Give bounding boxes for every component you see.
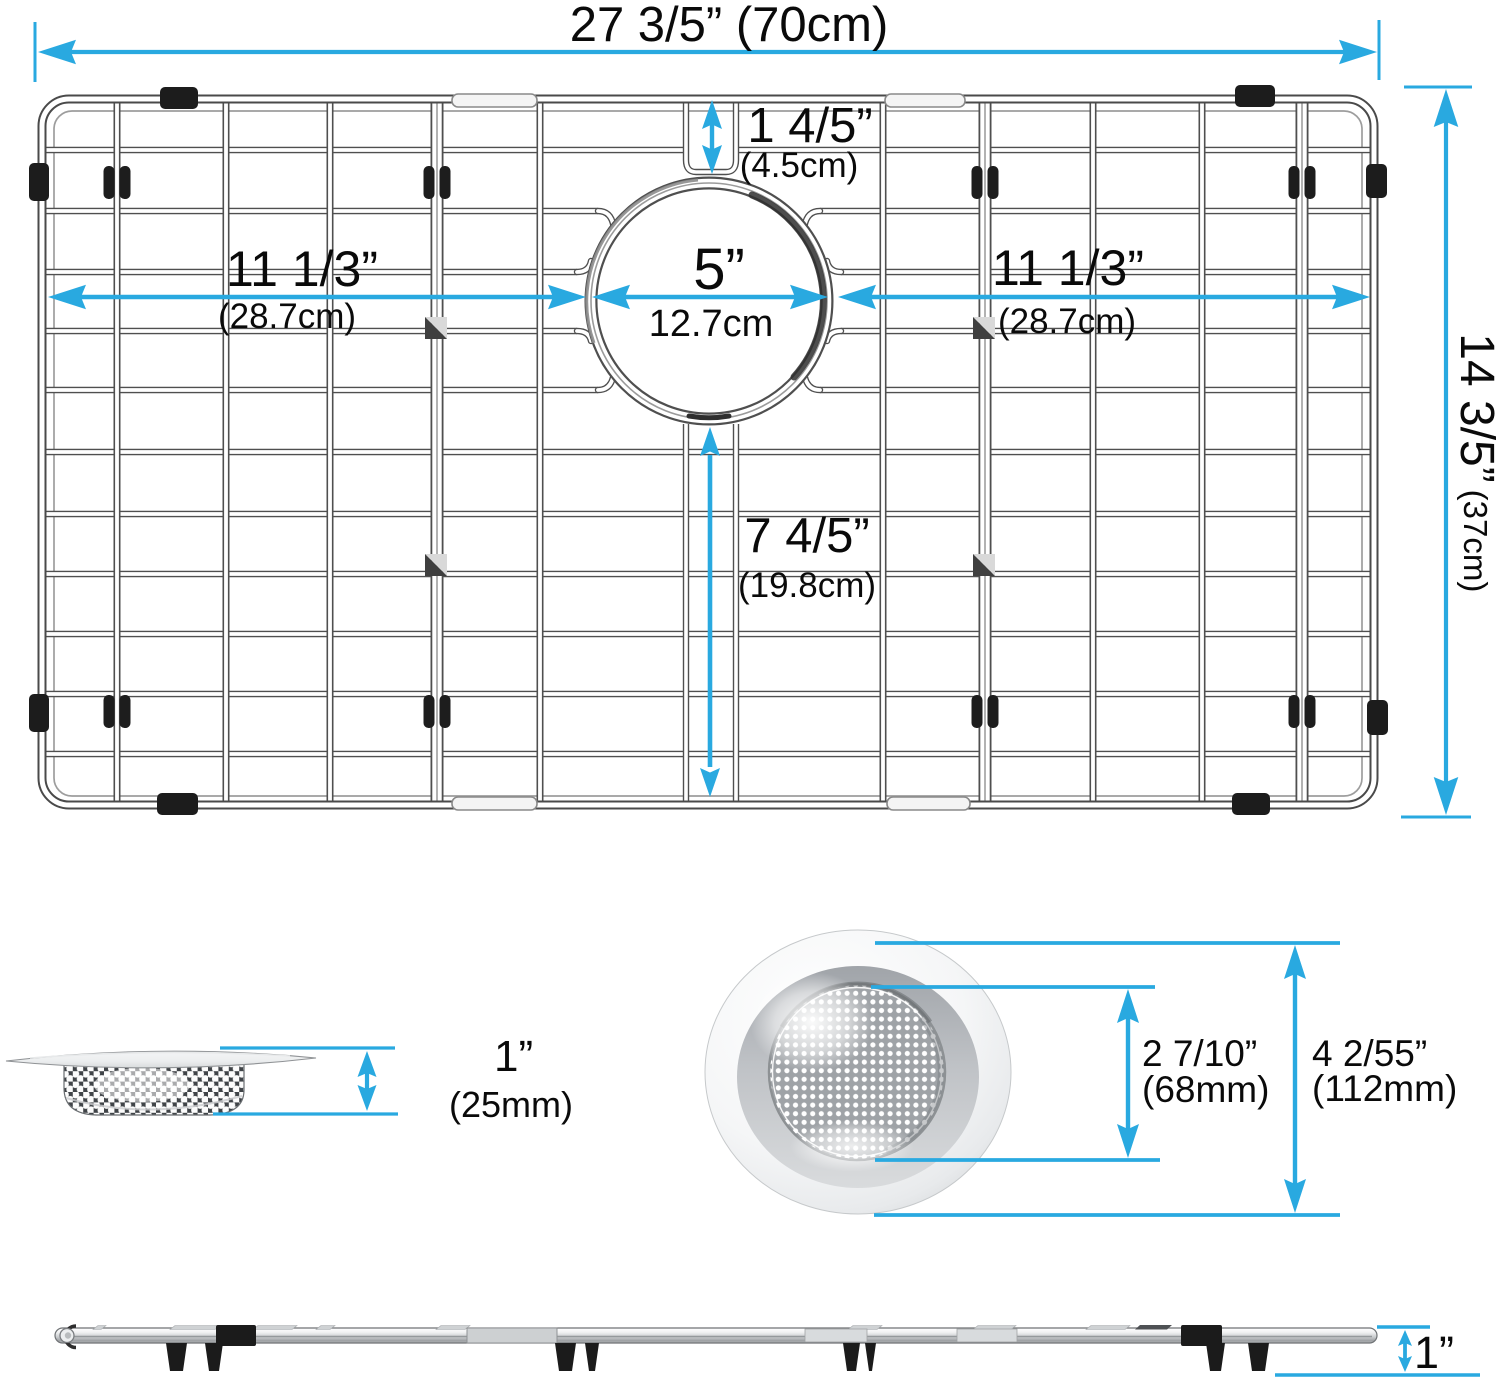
svg-text:11 1/3”: 11 1/3”	[992, 240, 1144, 296]
svg-text:1 4/5”: 1 4/5”	[747, 99, 872, 153]
svg-text:(37cm): (37cm)	[1457, 490, 1494, 593]
svg-text:12.7cm: 12.7cm	[649, 303, 774, 345]
svg-text:27 3/5” (70cm): 27 3/5” (70cm)	[570, 0, 889, 52]
svg-text:7 4/5”: 7 4/5”	[744, 509, 869, 563]
svg-text:(112mm): (112mm)	[1312, 1068, 1457, 1109]
svg-text:1”: 1”	[494, 1032, 533, 1081]
svg-text:(19.8cm): (19.8cm)	[738, 566, 876, 605]
svg-text:(4.5cm): (4.5cm)	[740, 146, 859, 185]
svg-text:1”: 1”	[1414, 1327, 1454, 1378]
svg-text:(28.7cm): (28.7cm)	[218, 297, 356, 336]
svg-text:5”: 5”	[693, 237, 745, 302]
svg-text:(25mm): (25mm)	[449, 1084, 573, 1125]
svg-text:(68mm): (68mm)	[1142, 1069, 1269, 1110]
svg-text:2 7/10”: 2 7/10”	[1142, 1033, 1257, 1074]
svg-text:14 3/5”: 14 3/5”	[1450, 333, 1500, 482]
svg-text:11 1/3”: 11 1/3”	[226, 241, 378, 297]
svg-text:(28.7cm): (28.7cm)	[998, 302, 1136, 341]
